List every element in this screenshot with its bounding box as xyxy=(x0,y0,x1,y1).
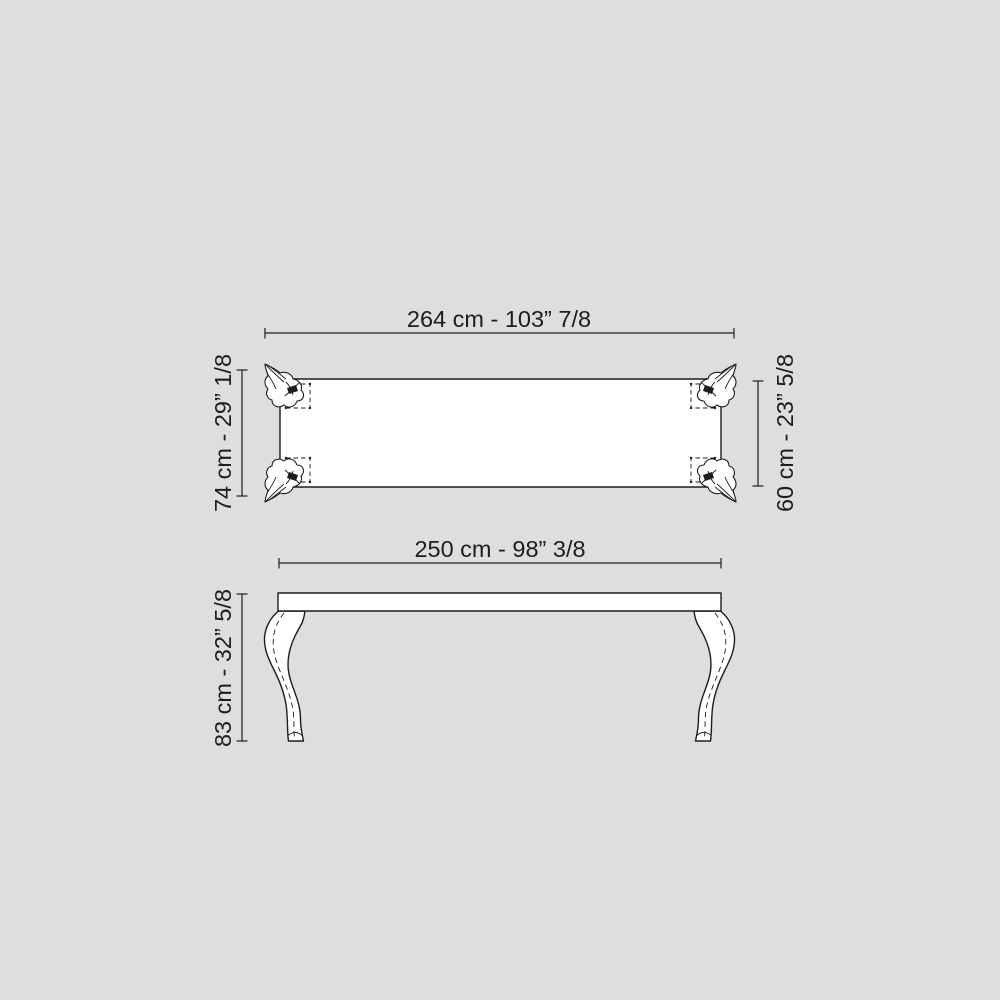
technical-drawing: 264 cm - 103” 7/8 74 cm - 29” 1/8 60 cm … xyxy=(0,0,1000,1000)
dim-overall-depth-label: 74 cm - 29” 1/8 xyxy=(210,354,236,512)
top-view: 264 cm - 103” 7/8 74 cm - 29” 1/8 60 cm … xyxy=(210,306,798,512)
tabletop-top-view xyxy=(280,379,721,487)
dim-overall-width: 264 cm - 103” 7/8 xyxy=(265,306,734,339)
tabletop-front-view xyxy=(278,593,721,611)
dim-tabletop-width-label: 250 cm - 98” 3/8 xyxy=(414,536,585,562)
dim-tabletop-depth: 60 cm - 23” 5/8 xyxy=(753,354,799,512)
dim-overall-width-label: 264 cm - 103” 7/8 xyxy=(407,306,591,332)
dim-overall-height-label: 83 cm - 32” 5/8 xyxy=(210,589,236,747)
dim-overall-height: 83 cm - 32” 5/8 xyxy=(210,589,248,747)
dim-overall-depth: 74 cm - 29” 1/8 xyxy=(210,354,248,512)
dim-tabletop-depth-label: 60 cm - 23” 5/8 xyxy=(772,354,798,512)
front-leg-right xyxy=(694,611,735,741)
drawing-canvas: 264 cm - 103” 7/8 74 cm - 29” 1/8 60 cm … xyxy=(0,0,1000,1000)
front-leg-left xyxy=(264,611,305,741)
dim-tabletop-width: 250 cm - 98” 3/8 xyxy=(279,536,721,569)
front-view: 250 cm - 98” 3/8 83 cm - 32” 5/8 xyxy=(210,536,735,747)
